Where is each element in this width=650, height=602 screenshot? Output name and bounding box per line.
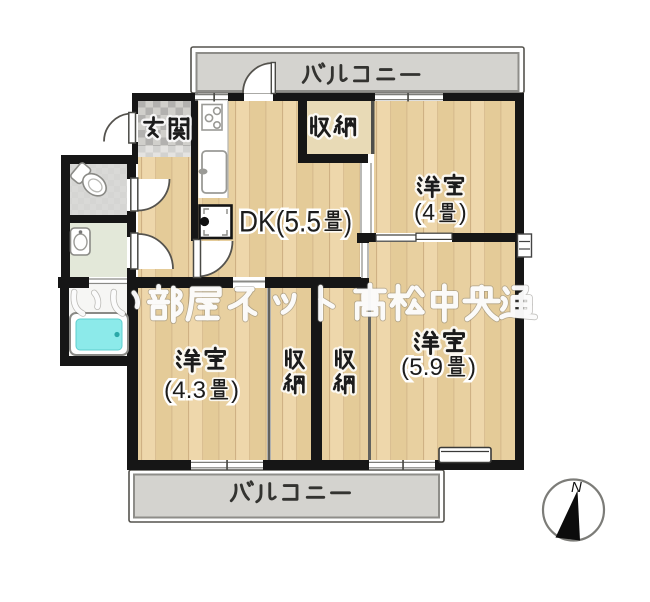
svg-text:(4: (4: [414, 199, 435, 225]
svg-text:(4.3: (4.3: [164, 377, 206, 404]
svg-text:(5.9: (5.9: [401, 354, 443, 381]
svg-text:DK(5.5: DK(5.5: [239, 206, 321, 239]
svg-text:): ): [459, 199, 467, 225]
svg-text:N: N: [571, 479, 582, 496]
svg-text:): ): [468, 354, 476, 381]
svg-text:): ): [344, 206, 352, 239]
svg-text:): ): [231, 377, 239, 404]
